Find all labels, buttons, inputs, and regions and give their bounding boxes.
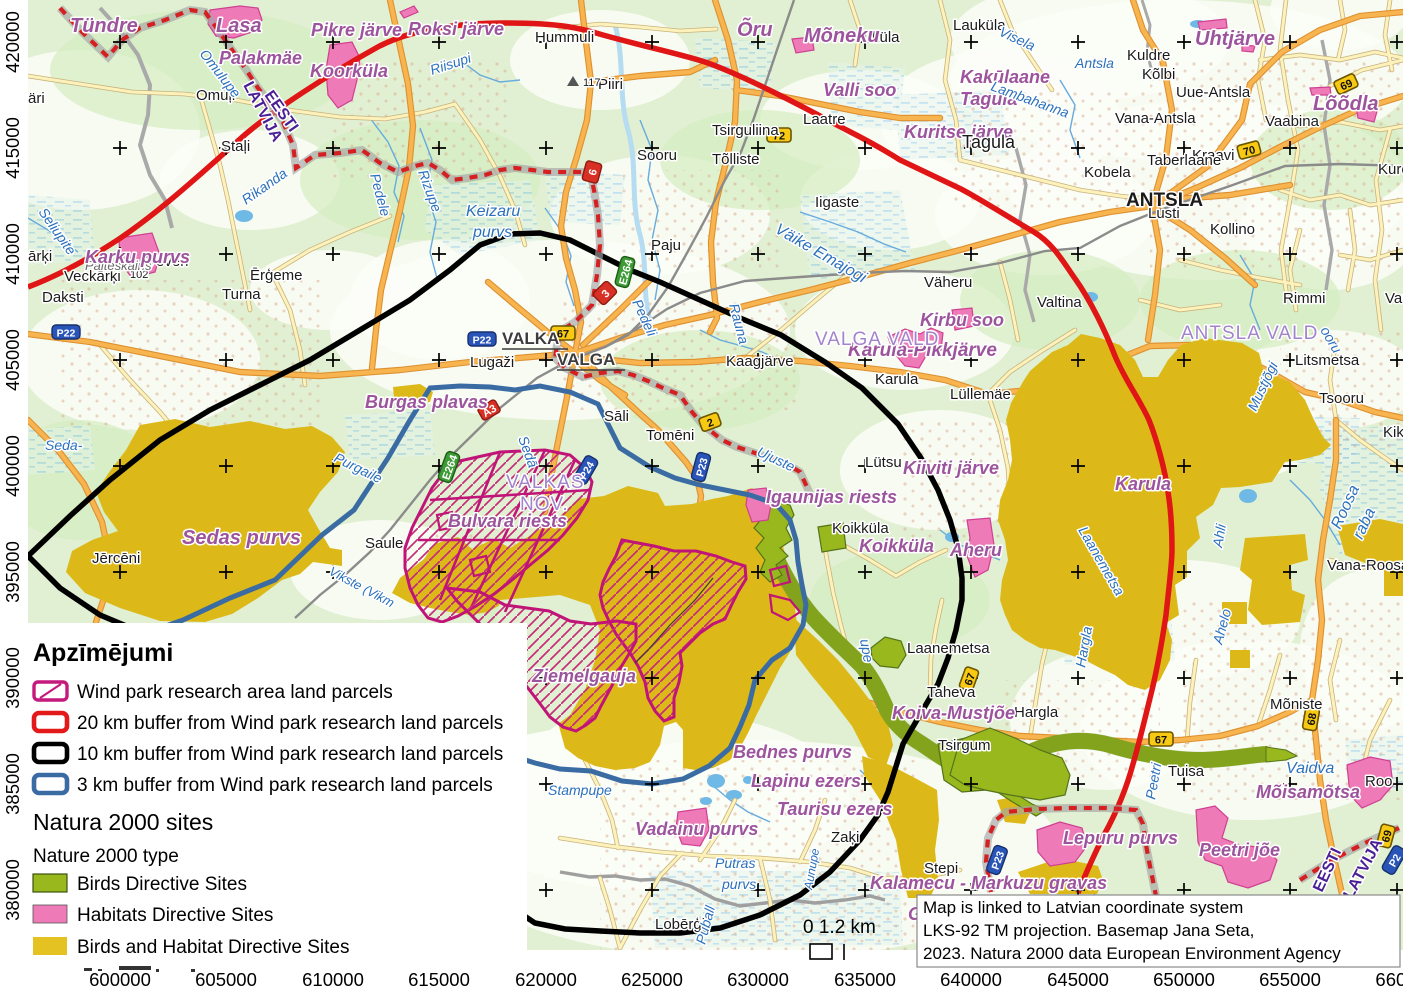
svg-text:Taheva: Taheva	[927, 684, 976, 701]
svg-text:Piiri: Piiri	[598, 76, 623, 93]
svg-text:Birds and Habitat Directive Si: Birds and Habitat Directive Sites	[77, 937, 349, 958]
svg-text:Sāli: Sāli	[604, 408, 629, 425]
svg-text:Hummuli: Hummuli	[535, 29, 594, 46]
svg-text:VALKA: VALKA	[502, 329, 559, 348]
svg-text:ārķi: ārķi	[28, 248, 52, 265]
svg-text:Kollino: Kollino	[1210, 221, 1255, 238]
svg-text:Koorküla: Koorküla	[310, 61, 388, 81]
svg-text:Kuldre: Kuldre	[1127, 47, 1170, 64]
svg-text:Vana-Roosa: Vana-Roosa	[1327, 557, 1403, 574]
svg-text:Kurel: Kurel	[1378, 161, 1403, 178]
svg-text:Koikküla: Koikküla	[832, 520, 889, 537]
svg-text:Palakmäe: Palakmäe	[219, 48, 302, 68]
svg-text:Vana-Antsla: Vana-Antsla	[1115, 110, 1196, 127]
svg-text:615000: 615000	[408, 969, 470, 990]
svg-text:2023. Natura 2000 data Europea: 2023. Natura 2000 data European Environm…	[923, 944, 1341, 963]
svg-text:10 km buffer from Wind park re: 10 km buffer from Wind park research lan…	[77, 744, 503, 765]
svg-text:Rimmi: Rimmi	[1283, 290, 1326, 307]
svg-text:Lusti: Lusti	[1148, 205, 1180, 222]
svg-text:Peetri jõe: Peetri jõe	[1199, 840, 1280, 860]
svg-text:ANTSLA VALD: ANTSLA VALD	[1181, 323, 1318, 344]
svg-text:VALKAS: VALKAS	[506, 472, 585, 493]
svg-text:Antsla: Antsla	[1074, 55, 1114, 71]
svg-text:6600: 6600	[1375, 969, 1403, 990]
svg-text:Kaagjärve: Kaagjärve	[726, 353, 794, 370]
svg-text:117: 117	[583, 77, 601, 89]
svg-text:Apzīmējumi: Apzīmējumi	[33, 639, 173, 667]
svg-text:Zaķi: Zaķi	[831, 829, 859, 846]
svg-text:Lapinu ezers: Lapinu ezers	[751, 771, 861, 791]
svg-text:Burgas plavas: Burgas plavas	[365, 392, 488, 412]
svg-text:Sedas purvs: Sedas purvs	[182, 527, 301, 549]
svg-text:Õru: Õru	[737, 17, 773, 41]
svg-text:Natura 2000 sites: Natura 2000 sites	[33, 809, 213, 835]
svg-text:Putras: Putras	[715, 855, 755, 871]
svg-text:Karku purvs: Karku purvs	[85, 247, 190, 267]
svg-text:385000: 385000	[2, 753, 23, 815]
svg-text:Wind park research area land p: Wind park research area land parcels	[77, 682, 393, 703]
svg-text:20 km buffer from Wind park re: 20 km buffer from Wind park research lan…	[77, 713, 503, 734]
svg-text:NOV.: NOV.	[520, 494, 569, 515]
svg-text:Aheru: Aheru	[949, 540, 1002, 560]
svg-text:Ziemelgauja: Ziemelgauja	[531, 666, 636, 686]
svg-text:Lüllemäe: Lüllemäe	[950, 386, 1011, 403]
svg-text:625000: 625000	[621, 969, 683, 990]
svg-text:610000: 610000	[302, 969, 364, 990]
svg-text:605000: 605000	[195, 969, 257, 990]
svg-text:Tsirguliina: Tsirguliina	[712, 122, 779, 139]
svg-text:Laatre: Laatre	[803, 111, 846, 128]
svg-text:655000: 655000	[1259, 969, 1321, 990]
svg-text:400000: 400000	[2, 435, 23, 497]
svg-text:Kiiviti järve: Kiiviti järve	[903, 458, 999, 478]
svg-text:VALGA VALD: VALGA VALD	[815, 329, 939, 350]
svg-text:Map is linked to Latvian coord: Map is linked to Latvian coordinate syst…	[923, 898, 1243, 917]
svg-text:405000: 405000	[2, 329, 23, 391]
svg-text:Lauküla: Lauküla	[953, 17, 1006, 34]
svg-text:640000: 640000	[940, 969, 1002, 990]
svg-text:VALGA: VALGA	[557, 350, 615, 369]
svg-text:Tuisa: Tuisa	[1168, 763, 1205, 780]
svg-text:LKS-92 TM projection. Basemap: LKS-92 TM projection. Basemap Jana Seta,	[923, 921, 1254, 940]
svg-text:420000: 420000	[2, 11, 23, 73]
svg-text:Tsooru: Tsooru	[1319, 390, 1364, 407]
svg-text:Lõõdla: Lõõdla	[1313, 93, 1379, 115]
svg-text:Lasa: Lasa	[216, 15, 262, 37]
svg-text:410000: 410000	[2, 223, 23, 285]
svg-text:purvs: purvs	[721, 876, 756, 892]
svg-text:Iigaste: Iigaste	[815, 194, 859, 211]
svg-text:600000: 600000	[89, 969, 151, 990]
svg-text:Mõniste: Mõniste	[1270, 696, 1323, 713]
svg-text:Uue-Antsla: Uue-Antsla	[1176, 84, 1251, 101]
svg-text:380000: 380000	[2, 859, 23, 921]
svg-text:Ērģeme: Ērģeme	[250, 267, 303, 284]
svg-text:Karula: Karula	[875, 371, 919, 388]
svg-text:Taberlaane: Taberlaane	[1147, 152, 1221, 169]
svg-text:Turna: Turna	[222, 286, 261, 303]
svg-text:Kikka: Kikka	[1383, 424, 1403, 441]
svg-text:Igaunijas riests: Igaunijas riests	[766, 487, 897, 507]
svg-text:Bednes purvs: Bednes purvs	[733, 742, 852, 762]
svg-text:Birds Directive Sites: Birds Directive Sites	[77, 874, 247, 895]
svg-text:415000: 415000	[2, 117, 23, 179]
svg-text:650000: 650000	[1153, 969, 1215, 990]
svg-text:0 1.2 km: 0 1.2 km	[803, 917, 876, 938]
svg-text:Koikküla: Koikküla	[859, 536, 934, 556]
svg-text:Tsirgum: Tsirgum	[938, 737, 991, 754]
svg-text:Varst: Varst	[1385, 290, 1403, 307]
svg-text:P22: P22	[473, 335, 492, 347]
svg-text:Vaidva: Vaidva	[1286, 760, 1334, 777]
svg-text:Sooru: Sooru	[637, 147, 677, 164]
svg-text:Tagula: Tagula	[962, 132, 1016, 152]
svg-text:Saule: Saule	[365, 535, 403, 552]
svg-text:Keizaru: Keizaru	[466, 203, 520, 220]
svg-text:Nature 2000 type: Nature 2000 type	[33, 846, 179, 867]
svg-text:Tõlliste: Tõlliste	[712, 151, 760, 168]
svg-text:Tomēni: Tomēni	[646, 427, 694, 444]
svg-text:P22: P22	[57, 328, 76, 340]
svg-text:Jērcēni: Jērcēni	[92, 550, 140, 567]
svg-text:Koiva-Mustjõe: Koiva-Mustjõe	[892, 703, 1015, 723]
svg-text:purvs: purvs	[472, 224, 512, 241]
svg-text:Habitats Directive Sites: Habitats Directive Sites	[77, 905, 273, 926]
svg-text:Kirbu soo: Kirbu soo	[920, 310, 1004, 330]
svg-text:390000: 390000	[2, 647, 23, 709]
svg-text:Stampupe: Stampupe	[548, 782, 612, 798]
svg-text:Lepuru purvs: Lepuru purvs	[1063, 828, 1178, 848]
svg-text:645000: 645000	[1047, 969, 1109, 990]
svg-text:620000: 620000	[515, 969, 577, 990]
svg-text:Valtina: Valtina	[1037, 294, 1082, 311]
svg-text:395000: 395000	[2, 541, 23, 603]
svg-text:67: 67	[1155, 735, 1167, 747]
svg-text:Daksti: Daksti	[42, 289, 84, 306]
svg-text:Paju: Paju	[651, 237, 681, 254]
svg-text:Vaabina: Vaabina	[1265, 113, 1320, 130]
svg-text:Taurisu ezers: Taurisu ezers	[777, 799, 892, 819]
svg-text:Kõlbi: Kõlbi	[1142, 66, 1175, 83]
svg-text:Pikre järve: Pikre järve	[311, 20, 402, 40]
svg-text:Tündre: Tündre	[70, 15, 138, 37]
svg-text:Staļi: Staļi	[221, 138, 250, 155]
svg-text:Vadainu purvs: Vadainu purvs	[635, 819, 758, 839]
svg-text:Kobela: Kobela	[1084, 164, 1131, 181]
svg-text:Valli soo: Valli soo	[823, 80, 896, 100]
svg-text:Laanemetsa: Laanemetsa	[907, 640, 990, 657]
svg-text:Mõisamõtsa: Mõisamõtsa	[1256, 782, 1360, 802]
svg-text:635000: 635000	[834, 969, 896, 990]
svg-text:Roksi järve: Roksi järve	[408, 19, 504, 39]
svg-text:Kalamecu - Markuzu gravas: Kalamecu - Markuzu gravas	[870, 873, 1107, 893]
svg-text:630000: 630000	[727, 969, 789, 990]
svg-text:Lütsu: Lütsu	[865, 454, 902, 471]
svg-text:äri: äri	[28, 90, 45, 107]
svg-text:Hargla: Hargla	[1014, 704, 1059, 721]
svg-text:Roo: Roo	[1365, 773, 1393, 790]
svg-text:Litsmetsa: Litsmetsa	[1295, 352, 1360, 369]
svg-text:Väheru: Väheru	[924, 274, 972, 291]
svg-text:Karula: Karula	[1115, 474, 1171, 494]
svg-text:68: 68	[1306, 712, 1320, 726]
svg-text:Uhtjärve: Uhtjärve	[1195, 28, 1275, 50]
svg-text:3 km buffer from Wind park res: 3 km buffer from Wind park research land…	[77, 775, 493, 796]
svg-text:Seda-: Seda-	[45, 437, 83, 453]
svg-text:Lugaži: Lugaži	[470, 354, 514, 371]
svg-text:Mõneku: Mõneku	[804, 25, 880, 47]
